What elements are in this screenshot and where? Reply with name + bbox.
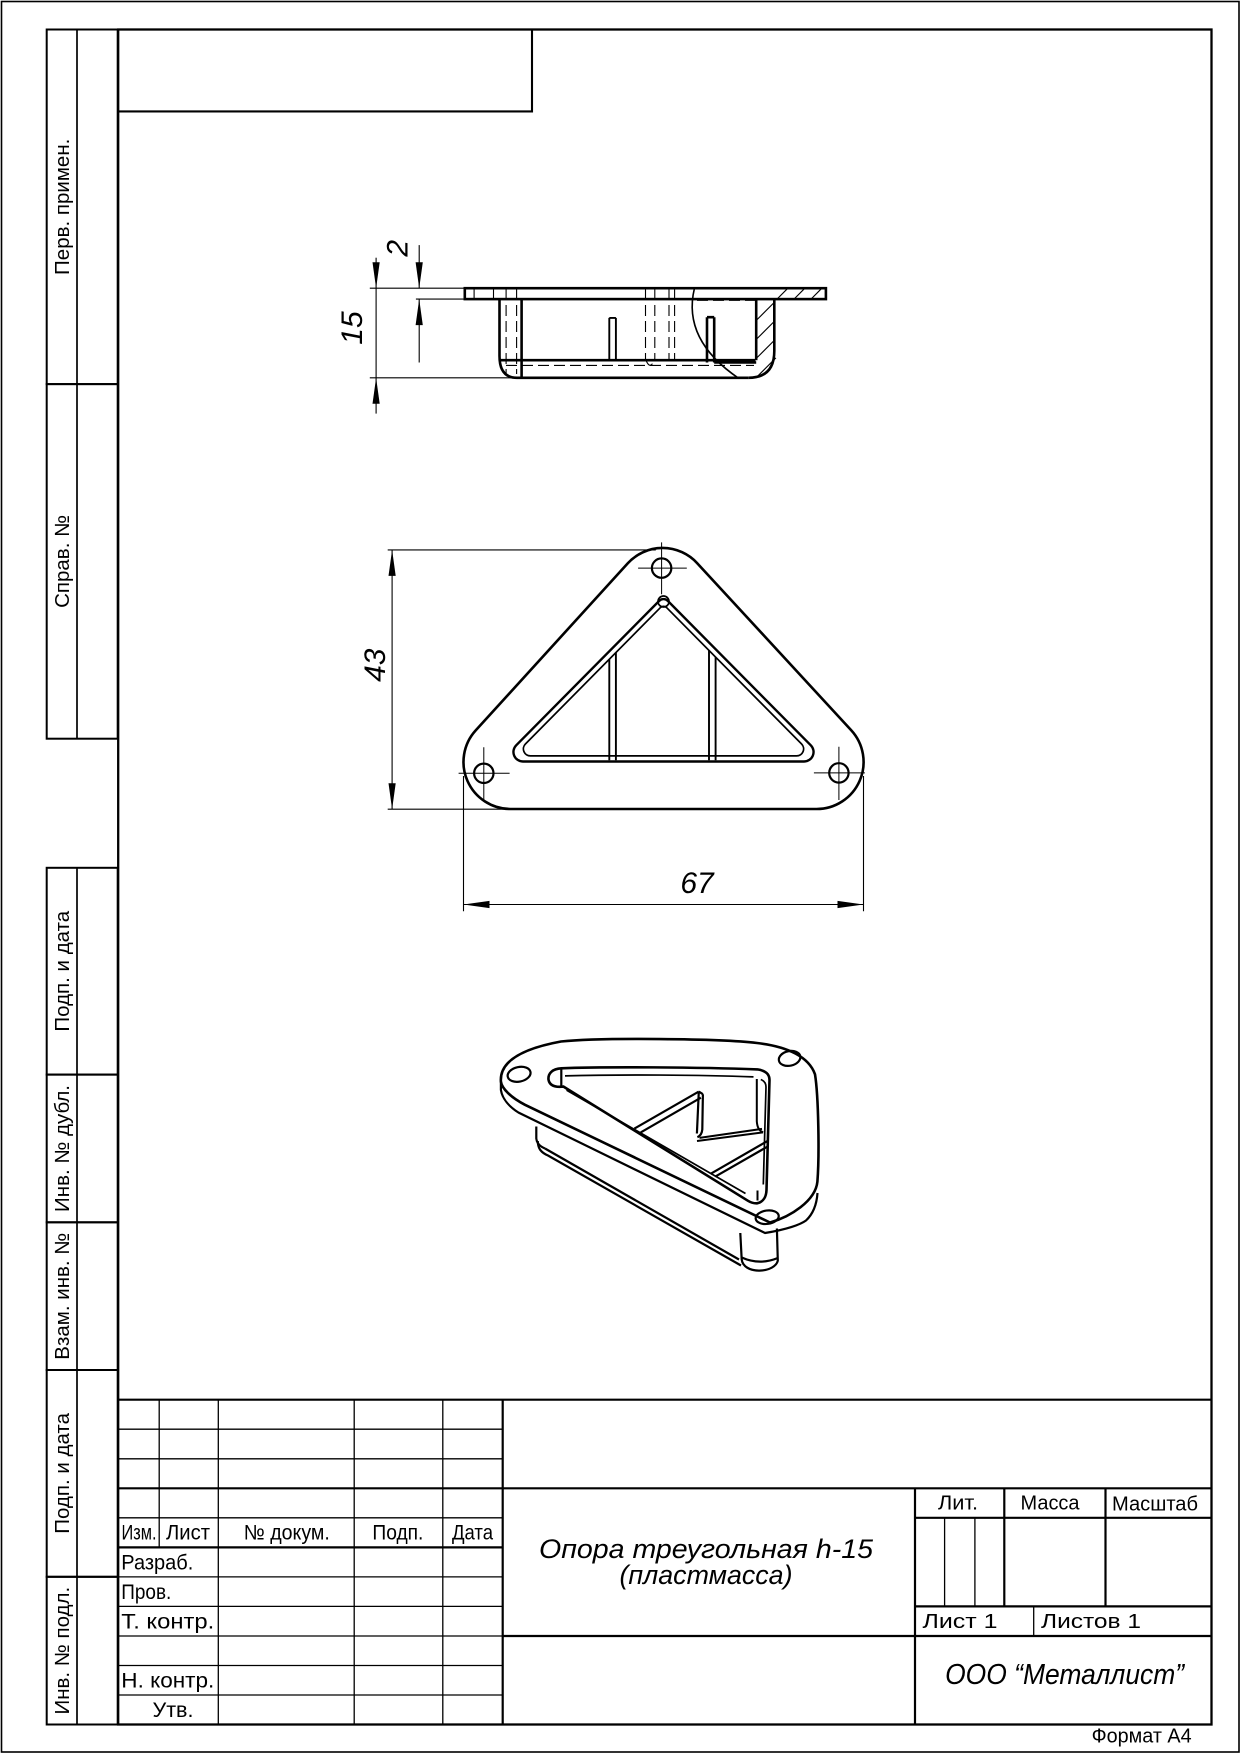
svg-text:Лит.: Лит. xyxy=(938,1493,978,1515)
svg-text:Н. контр.: Н. контр. xyxy=(121,1670,214,1693)
svg-text:Т. контр.: Т. контр. xyxy=(121,1611,214,1634)
svg-text:Формат А4: Формат А4 xyxy=(1092,1726,1192,1748)
svg-text:43: 43 xyxy=(359,648,392,682)
svg-text:Дата: Дата xyxy=(452,1522,493,1545)
svg-text:Подп. и дата: Подп. и дата xyxy=(51,1412,74,1533)
svg-text:Лист 1: Лист 1 xyxy=(923,1611,998,1633)
svg-text:Изм.: Изм. xyxy=(122,1522,157,1545)
svg-text:№ докум.: № докум. xyxy=(244,1522,330,1545)
svg-text:Перв. примен.: Перв. примен. xyxy=(51,139,74,275)
svg-text:(пластмасса): (пластмасса) xyxy=(620,1560,793,1590)
svg-text:Справ. №: Справ. № xyxy=(51,515,74,608)
svg-text:Подп. и дата: Подп. и дата xyxy=(51,910,74,1031)
svg-text:Разраб.: Разраб. xyxy=(121,1552,193,1575)
svg-text:Лист: Лист xyxy=(166,1522,210,1545)
svg-text:Листов 1: Листов 1 xyxy=(1041,1611,1141,1633)
svg-text:Взам. инв. №: Взам. инв. № xyxy=(51,1233,74,1360)
svg-text:Инв. № дубл.: Инв. № дубл. xyxy=(51,1085,74,1212)
svg-text:ООО “Металлист”: ООО “Металлист” xyxy=(945,1659,1185,1691)
svg-text:Масштаб: Масштаб xyxy=(1112,1494,1198,1516)
svg-text:Утв.: Утв. xyxy=(153,1699,194,1722)
svg-text:Пров.: Пров. xyxy=(121,1581,171,1604)
svg-text:Масса: Масса xyxy=(1021,1493,1081,1515)
svg-text:2: 2 xyxy=(382,240,415,258)
svg-text:15: 15 xyxy=(336,311,369,345)
svg-text:67: 67 xyxy=(680,867,715,900)
svg-text:Подп.: Подп. xyxy=(372,1522,423,1545)
svg-text:Инв. № подл.: Инв. № подл. xyxy=(51,1587,74,1715)
